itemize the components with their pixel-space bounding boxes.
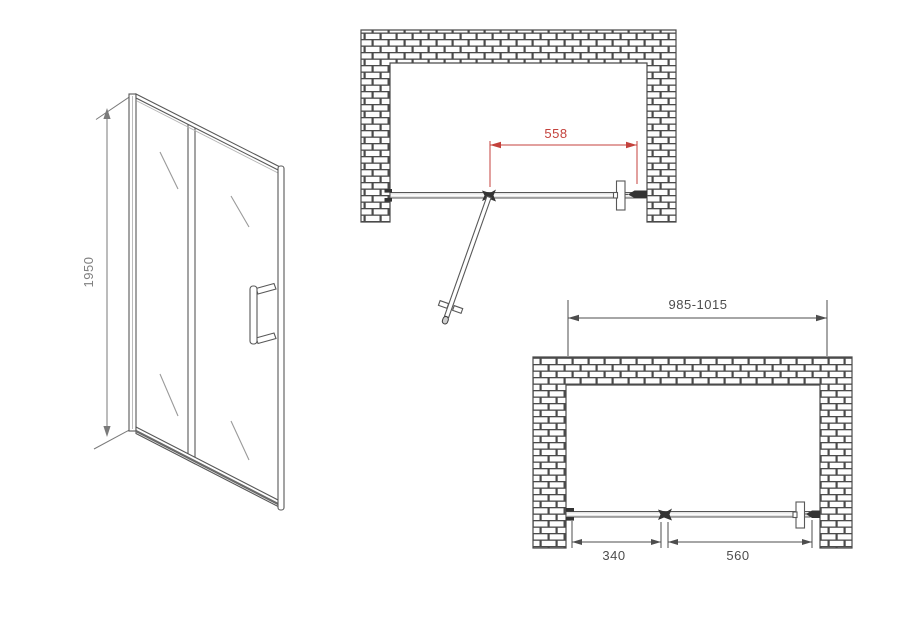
- height-label: 1950: [81, 257, 96, 288]
- plan-view-closed: 985-1015 340 560: [533, 297, 852, 563]
- top-glass-edge: [137, 101, 282, 175]
- handle-top-stub: [256, 284, 276, 295]
- segment-dimensions: 340 560: [572, 520, 812, 563]
- arrow-right: [626, 142, 637, 148]
- door-edge-profile: [278, 166, 284, 510]
- arrow-right: [651, 539, 661, 545]
- arrow-left: [668, 539, 678, 545]
- center-profile: [188, 121, 195, 464]
- arrow-right: [816, 315, 827, 321]
- door-handle-bar-right: [453, 306, 463, 314]
- arrow-right: [802, 539, 812, 545]
- door-width-dimension: 558: [490, 126, 637, 187]
- arrow-left: [490, 142, 501, 148]
- door-frame: [129, 94, 284, 510]
- handle-bar: [250, 286, 257, 344]
- door-handle-bar-left: [438, 301, 448, 309]
- open-door-leaf: [433, 193, 501, 328]
- door-segment-label: 560: [726, 548, 749, 563]
- sill-shadow-line: [136, 431, 280, 505]
- door-glass-edge: [445, 196, 492, 317]
- arrow-left: [572, 539, 582, 545]
- fixed-segment-label: 340: [602, 548, 625, 563]
- height-dimension: 1950: [81, 95, 134, 450]
- clamp-nub: [385, 198, 393, 202]
- glass-reflections: [160, 152, 249, 460]
- extension-tick-bottom: [94, 428, 134, 450]
- technical-drawing-canvas: 1950: [0, 0, 900, 636]
- door-end-cap: [442, 316, 450, 325]
- right-wall-bracket: [614, 181, 648, 210]
- shower-door-drawing: 1950: [0, 0, 900, 636]
- overall-width-dimension: 985-1015: [568, 297, 827, 356]
- clamp-nub: [385, 189, 393, 193]
- reflection-mark: [231, 421, 249, 460]
- arrow-left: [568, 315, 579, 321]
- reflection-mark: [160, 152, 178, 189]
- extension-tick-top: [96, 95, 133, 120]
- clamp-nub: [566, 517, 574, 521]
- top-rail: [136, 94, 283, 173]
- reflection-mark: [160, 374, 178, 416]
- door-handle: [250, 284, 276, 345]
- profile-notch: [793, 512, 797, 518]
- door-width-label: 558: [544, 126, 567, 141]
- front-view: 1950: [81, 94, 284, 510]
- profile-notch: [614, 193, 618, 199]
- arrow-down: [103, 426, 110, 437]
- reflection-mark: [231, 196, 249, 227]
- handle-bottom-stub: [256, 333, 276, 344]
- plan-view-open: 558: [361, 30, 676, 328]
- overall-width-label: 985-1015: [669, 297, 728, 312]
- clamp-nub: [566, 508, 574, 512]
